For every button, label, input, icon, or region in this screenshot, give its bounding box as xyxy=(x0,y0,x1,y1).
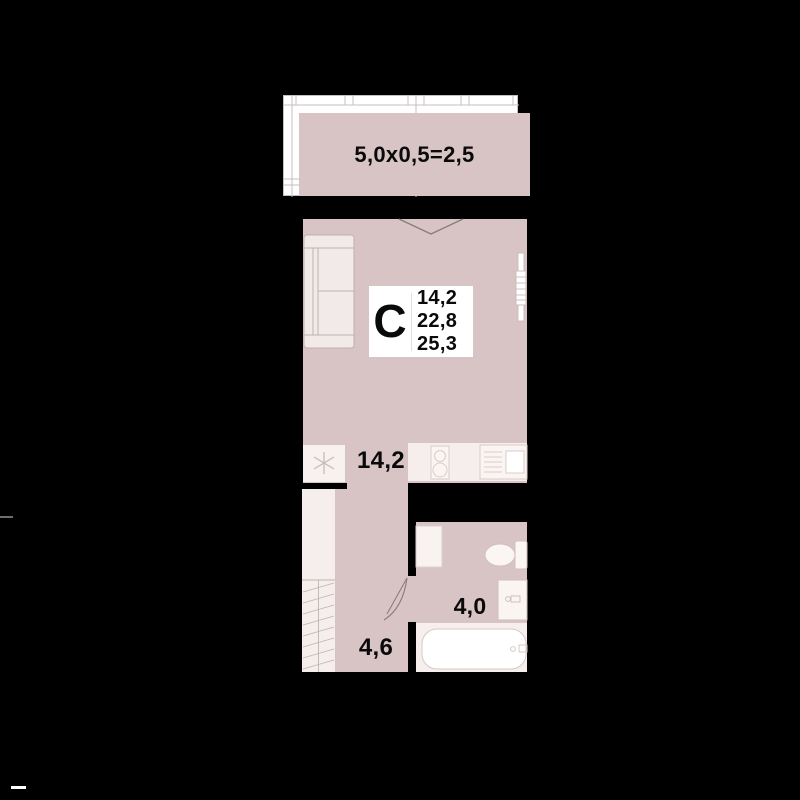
balcony-dimension-label: 5,0x0,5=2,5 xyxy=(354,144,474,166)
hallway-area-label: 4,6 xyxy=(346,636,406,660)
floor-plan-canvas: 5,0x0,5=2,5 xyxy=(0,0,800,800)
margin-dash-bottom xyxy=(11,786,26,789)
kitchen-counter xyxy=(408,443,527,481)
living-room-area-label: 14,2 xyxy=(351,449,411,473)
bathroom-area-label: 4,0 xyxy=(440,595,500,618)
fridge-box xyxy=(303,445,345,482)
unit-area-3: 25,3 xyxy=(417,333,457,356)
unit-type-letter: С xyxy=(369,286,411,357)
unit-area-1: 14,2 xyxy=(417,287,457,310)
balcony-area: 5,0x0,5=2,5 xyxy=(299,113,530,196)
bathroom-doorway xyxy=(408,576,416,622)
bathtub-platform xyxy=(416,623,527,672)
unit-info-badge: С 14,2 22,8 25,3 xyxy=(369,286,473,357)
margin-dash-left xyxy=(0,516,13,518)
wardrobe-strip xyxy=(302,489,335,672)
unit-area-2: 22,8 xyxy=(417,310,457,333)
